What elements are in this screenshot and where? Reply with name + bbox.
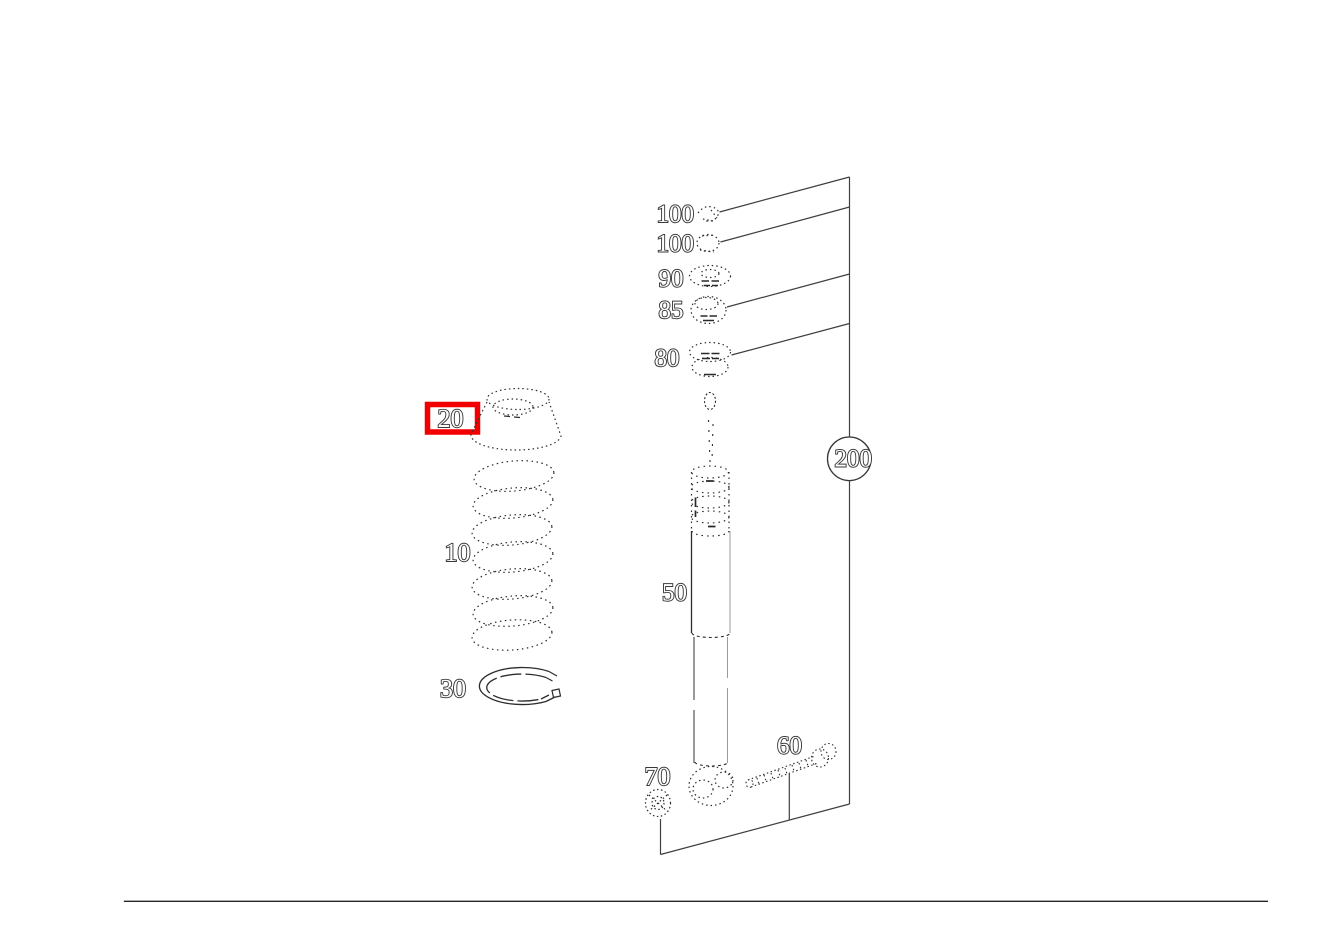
- svg-text:50: 50: [662, 580, 687, 607]
- svg-text:70: 70: [645, 762, 671, 791]
- svg-text:200: 200: [835, 446, 873, 473]
- svg-text:85: 85: [659, 297, 684, 324]
- svg-text:10: 10: [445, 538, 471, 567]
- svg-text:30: 30: [440, 674, 466, 703]
- svg-text:100: 100: [657, 231, 695, 258]
- svg-text:60: 60: [777, 733, 802, 760]
- svg-text:80: 80: [655, 345, 680, 372]
- svg-text:20: 20: [438, 404, 464, 433]
- svg-text:100: 100: [657, 201, 695, 228]
- svg-text:90: 90: [659, 266, 684, 293]
